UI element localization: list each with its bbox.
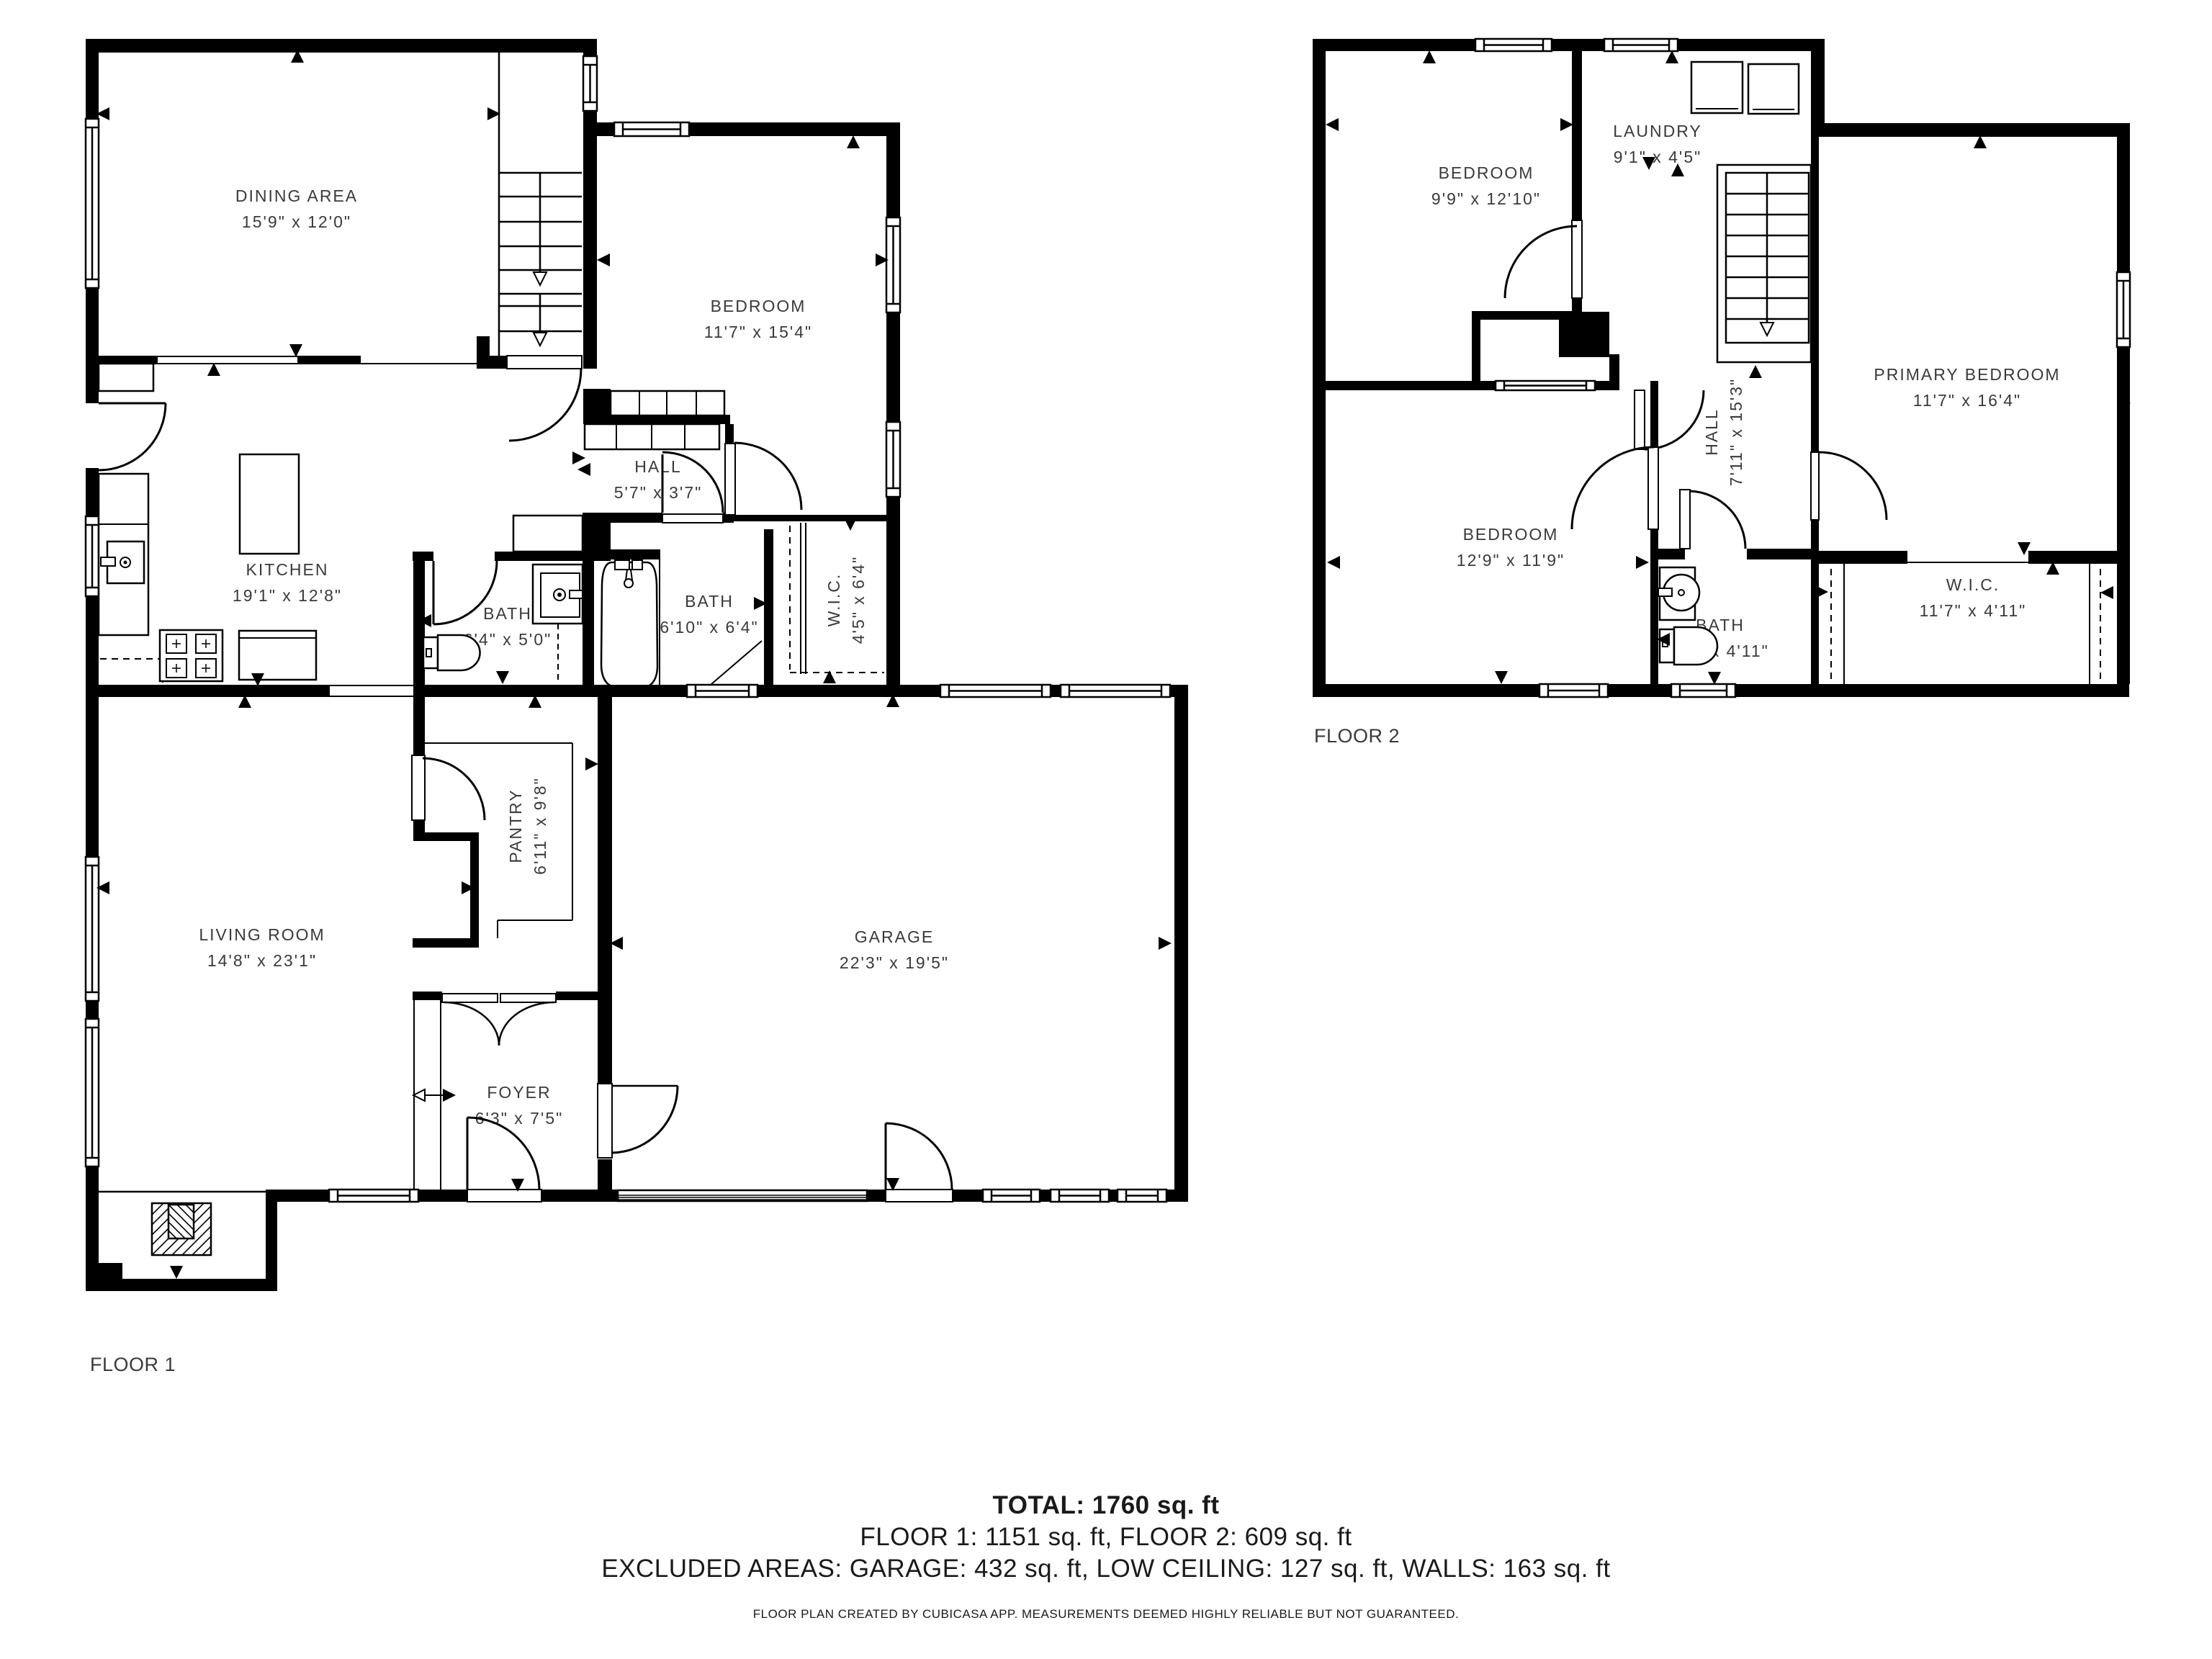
svg-text:7'11" x 15'3": 7'11" x 15'3" [1727,378,1745,486]
svg-text:TOTAL: 1760 sq. ft: TOTAL: 1760 sq. ft [993,1491,1220,1519]
svg-text:15'9" x 12'0": 15'9" x 12'0" [242,212,351,231]
svg-text:EXCLUDED AREAS: GARAGE: 432 sq: EXCLUDED AREAS: GARAGE: 432 sq. ft, LOW … [601,1555,1610,1583]
svg-text:W.I.C.: W.I.C. [824,573,843,627]
svg-text:DINING AREA: DINING AREA [235,186,358,205]
svg-text:14'8" x 23'1": 14'8" x 23'1" [207,951,317,970]
svg-text:6'11" x 9'8": 6'11" x 9'8" [531,777,549,875]
svg-text:BEDROOM: BEDROOM [711,297,806,315]
svg-text:6'3" x 7'5": 6'3" x 7'5" [475,1109,564,1128]
svg-text:FOYER: FOYER [487,1083,551,1102]
svg-text:LAUNDRY: LAUNDRY [1613,122,1702,140]
svg-text:W.I.C.: W.I.C. [1946,575,2000,594]
svg-text:BEDROOM: BEDROOM [1463,525,1559,544]
svg-text:9'1" x 4'5": 9'1" x 4'5" [1614,148,1702,166]
svg-text:HALL: HALL [1702,408,1721,456]
svg-text:FLOOR PLAN CREATED BY CUBICASA: FLOOR PLAN CREATED BY CUBICASA APP. MEAS… [753,1607,1459,1621]
svg-text:11'7" x 15'4": 11'7" x 15'4" [704,323,812,341]
svg-text:FLOOR 2: FLOOR 2 [1314,725,1400,747]
svg-text:FLOOR 1: FLOOR 1 [90,1354,176,1375]
svg-text:LIVING ROOM: LIVING ROOM [199,925,325,944]
svg-text:BEDROOM: BEDROOM [1439,163,1534,182]
svg-text:12'9" x 11'9": 12'9" x 11'9" [1457,551,1565,570]
svg-text:11'7" x 16'4": 11'7" x 16'4" [1913,391,2021,410]
svg-text:PRIMARY BEDROOM: PRIMARY BEDROOM [1874,365,2060,384]
svg-text:6'10" x 6'4": 6'10" x 6'4" [660,618,758,637]
svg-text:HALL: HALL [634,457,682,476]
svg-text:22'3" x 19'5": 22'3" x 19'5" [840,953,949,972]
svg-text:BATH: BATH [483,604,532,623]
svg-text:FLOOR 1: 1151 sq. ft, FLOOR 2:: FLOOR 1: 1151 sq. ft, FLOOR 2: 609 sq. f… [860,1523,1352,1551]
svg-text:BATH: BATH [685,592,734,611]
svg-text:11'7" x 4'11": 11'7" x 4'11" [1920,601,2027,620]
svg-text:9'9" x 12'10": 9'9" x 12'10" [1431,189,1541,208]
svg-text:KITCHEN: KITCHEN [246,560,329,579]
svg-text:PANTRY: PANTRY [506,788,525,863]
svg-text:5'7" x 3'7": 5'7" x 3'7" [614,483,703,502]
svg-text:19'1" x 12'8": 19'1" x 12'8" [233,586,342,605]
svg-text:GARAGE: GARAGE [855,927,934,946]
svg-text:4'5" x 6'4": 4'5" x 6'4" [849,556,868,644]
